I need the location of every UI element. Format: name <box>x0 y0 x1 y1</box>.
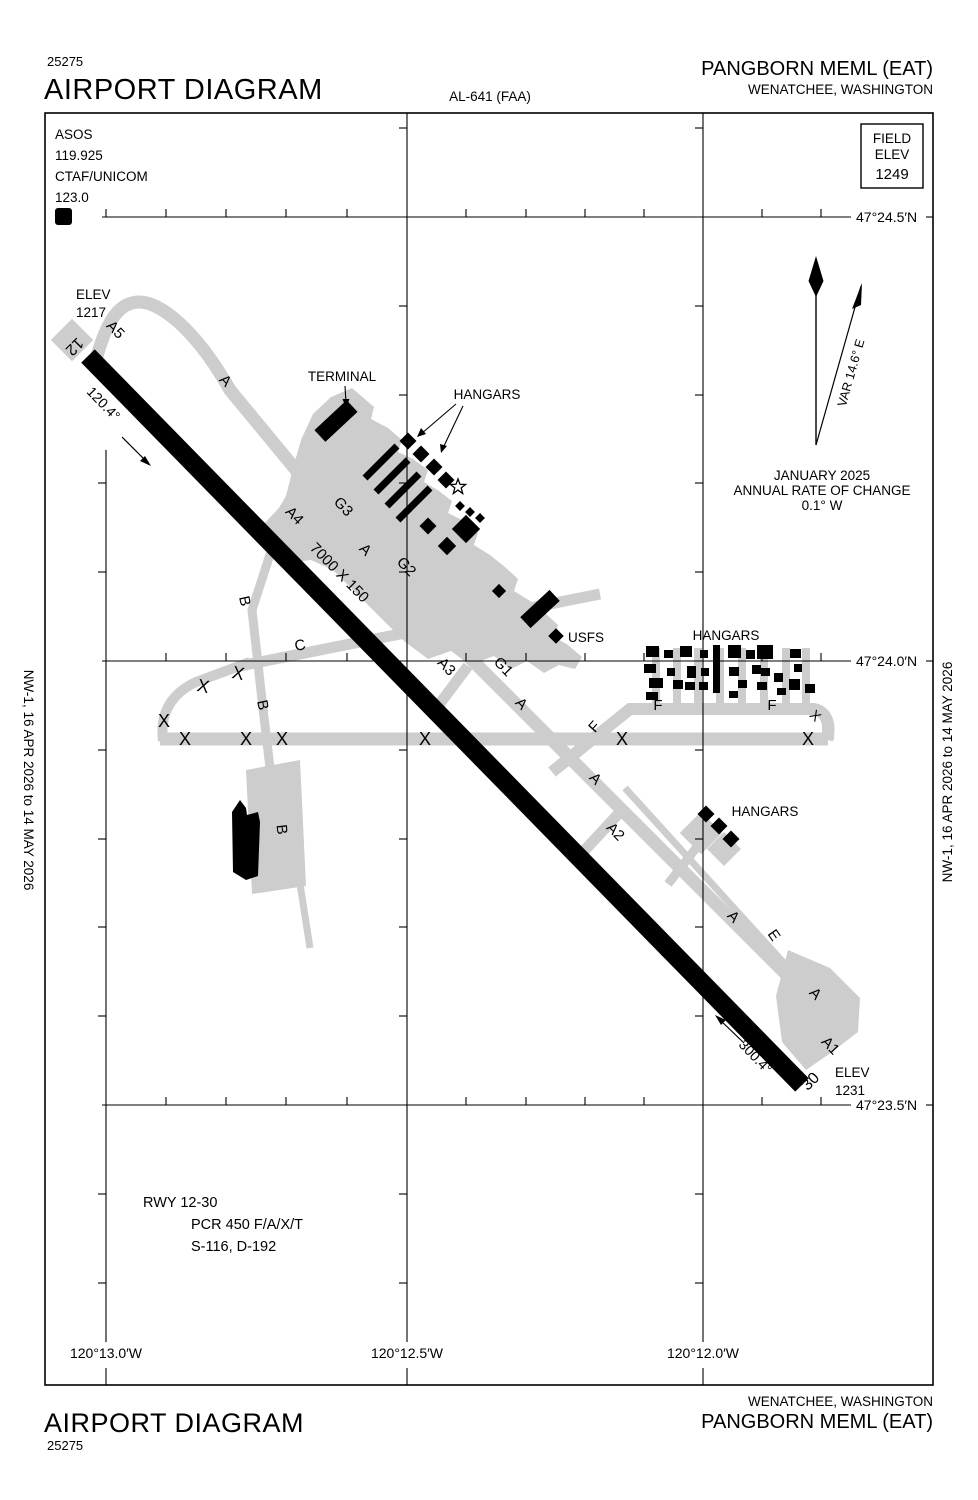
southwest-apron-tail <box>300 884 310 948</box>
comm-info: ASOS 119.925 CTAF/UNICOM 123.0 D <box>55 127 148 225</box>
hangars-north-arrow-1 <box>421 404 456 434</box>
footer-title: AIRPORT DIAGRAM <box>44 1408 304 1438</box>
footer-city: WENATCHEE, WASHINGTON <box>748 1394 933 1409</box>
footer-sheet-number: 25275 <box>47 1438 83 1453</box>
compass-rose: VAR 14.6° E JANUARY 2025 ANNUAL RATE OF … <box>733 256 910 513</box>
field-elev-value: 1249 <box>875 166 908 183</box>
annual-rate-label: ANNUAL RATE OF CHANGE <box>733 483 910 498</box>
taxiway-label-b: B <box>253 698 272 711</box>
footer-airport-name: PANGBORN MEML (EAT) <box>701 1411 933 1433</box>
hangars-north-label: HANGARS <box>454 387 521 402</box>
chart-reference: AL-641 (FAA) <box>449 89 531 104</box>
asos-frequency: 119.925 <box>55 148 103 163</box>
taxiway-label-f: F <box>767 697 776 714</box>
field-elev-line1: FIELD <box>873 131 912 146</box>
closed-x-marker: X <box>158 711 170 731</box>
usfs-label: USFS <box>568 630 604 645</box>
airport-city: WENATCHEE, WASHINGTON <box>748 82 933 97</box>
closed-x-marker: X <box>276 729 288 749</box>
footer-airport-name-main: PANGBORN MEML <box>701 1411 882 1433</box>
taxiway-label-f: F <box>653 697 662 714</box>
lat-label-1: 47°24.5′N <box>856 209 917 225</box>
graticule-labels: 47°24.5′N 47°24.0′N 47°23.5′N 120°13.0′W… <box>70 209 917 1361</box>
closed-x-marker: X <box>240 729 252 749</box>
grid-lines <box>98 113 933 1385</box>
closed-x-marker: X <box>419 729 431 749</box>
rwy12-elev-label: ELEV <box>76 287 111 302</box>
field-elevation-box: FIELD ELEV 1249 <box>861 124 923 188</box>
closed-x-marker: X <box>179 729 191 749</box>
runway-annotations: ELEV 1217 12 120.4° 7000 X 150 300.4° 30… <box>62 287 870 1255</box>
rwy30-elev-label: ELEV <box>835 1065 870 1080</box>
airport-identifier: (EAT) <box>882 58 933 80</box>
rwy-info-line2: PCR 450 F/A/X/T <box>191 1217 303 1233</box>
variation-date: JANUARY 2025 <box>774 468 870 483</box>
hangars-north-arrowhead-2-icon <box>440 444 447 453</box>
lat-label-3: 47°23.5′N <box>856 1097 917 1113</box>
asos-label: ASOS <box>55 127 93 142</box>
ctaf-frequency: 123.0 <box>55 190 89 205</box>
taxiway-label-c: C <box>293 636 307 655</box>
diagram-d-letter: D <box>59 210 68 225</box>
closed-x-marker: X <box>802 729 814 749</box>
terminal-label: TERMINAL <box>308 369 377 384</box>
sheet-number: 25275 <box>47 54 83 69</box>
taxiway-label-b: B <box>272 824 290 836</box>
header: 25275 AIRPORT DIAGRAM AL-641 (FAA) PANGB… <box>44 54 933 106</box>
rwy-info-line1: RWY 12-30 <box>143 1195 217 1211</box>
hangars-south-label: HANGARS <box>732 804 799 819</box>
hangars-east-label: HANGARS <box>693 628 760 643</box>
airport-name-main: PANGBORN MEML <box>701 58 882 80</box>
true-north-arrowhead-icon <box>809 256 824 297</box>
airport-name: PANGBORN MEML (EAT) <box>701 58 933 80</box>
margin-note-left: NW-1, 16 APR 2026 to 14 MAY 2026 <box>21 670 36 891</box>
airport-diagram-page: 25275 AIRPORT DIAGRAM AL-641 (FAA) PANGB… <box>0 0 978 1500</box>
tall-hangar-bar <box>713 645 720 693</box>
taxiway-labels: A5 A A4 G3 A G2 B C B B A3 G1 A A F F F … <box>103 317 843 1058</box>
rwy-info-line3: S-116, D-192 <box>191 1239 276 1255</box>
margin-note-right: NW-1, 16 APR 2026 to 14 MAY 2026 <box>940 662 955 883</box>
field-elev-line2: ELEV <box>875 147 910 162</box>
lon-label-1: 120°13.0′W <box>70 1345 143 1361</box>
annual-rate-value: 0.1° W <box>802 498 843 513</box>
hangars-north-arrowhead-1-icon <box>417 428 426 437</box>
rwy12-elev-value: 1217 <box>76 305 106 320</box>
lon-label-3: 120°12.0′W <box>667 1345 740 1361</box>
footer: WENATCHEE, WASHINGTON PANGBORN MEML (EAT… <box>44 1394 933 1453</box>
closed-x-marker: X <box>616 729 628 749</box>
ctaf-label: CTAF/UNICOM <box>55 169 148 184</box>
runway30-apron-bulb <box>776 950 860 1070</box>
runway-12-30 <box>88 356 802 1085</box>
footer-airport-identifier: (EAT) <box>882 1411 933 1433</box>
variation-label: VAR 14.6° E <box>835 338 868 409</box>
page-title: AIRPORT DIAGRAM <box>44 74 323 106</box>
rwy12-heading-arrowhead-icon <box>140 456 151 466</box>
lon-label-2: 120°12.5′W <box>371 1345 444 1361</box>
lat-label-2: 47°24.0′N <box>856 653 917 669</box>
rwy30-elev-value: 1231 <box>835 1083 865 1098</box>
airport-diagram-canvas: 25275 AIRPORT DIAGRAM AL-641 (FAA) PANGB… <box>0 0 978 1500</box>
